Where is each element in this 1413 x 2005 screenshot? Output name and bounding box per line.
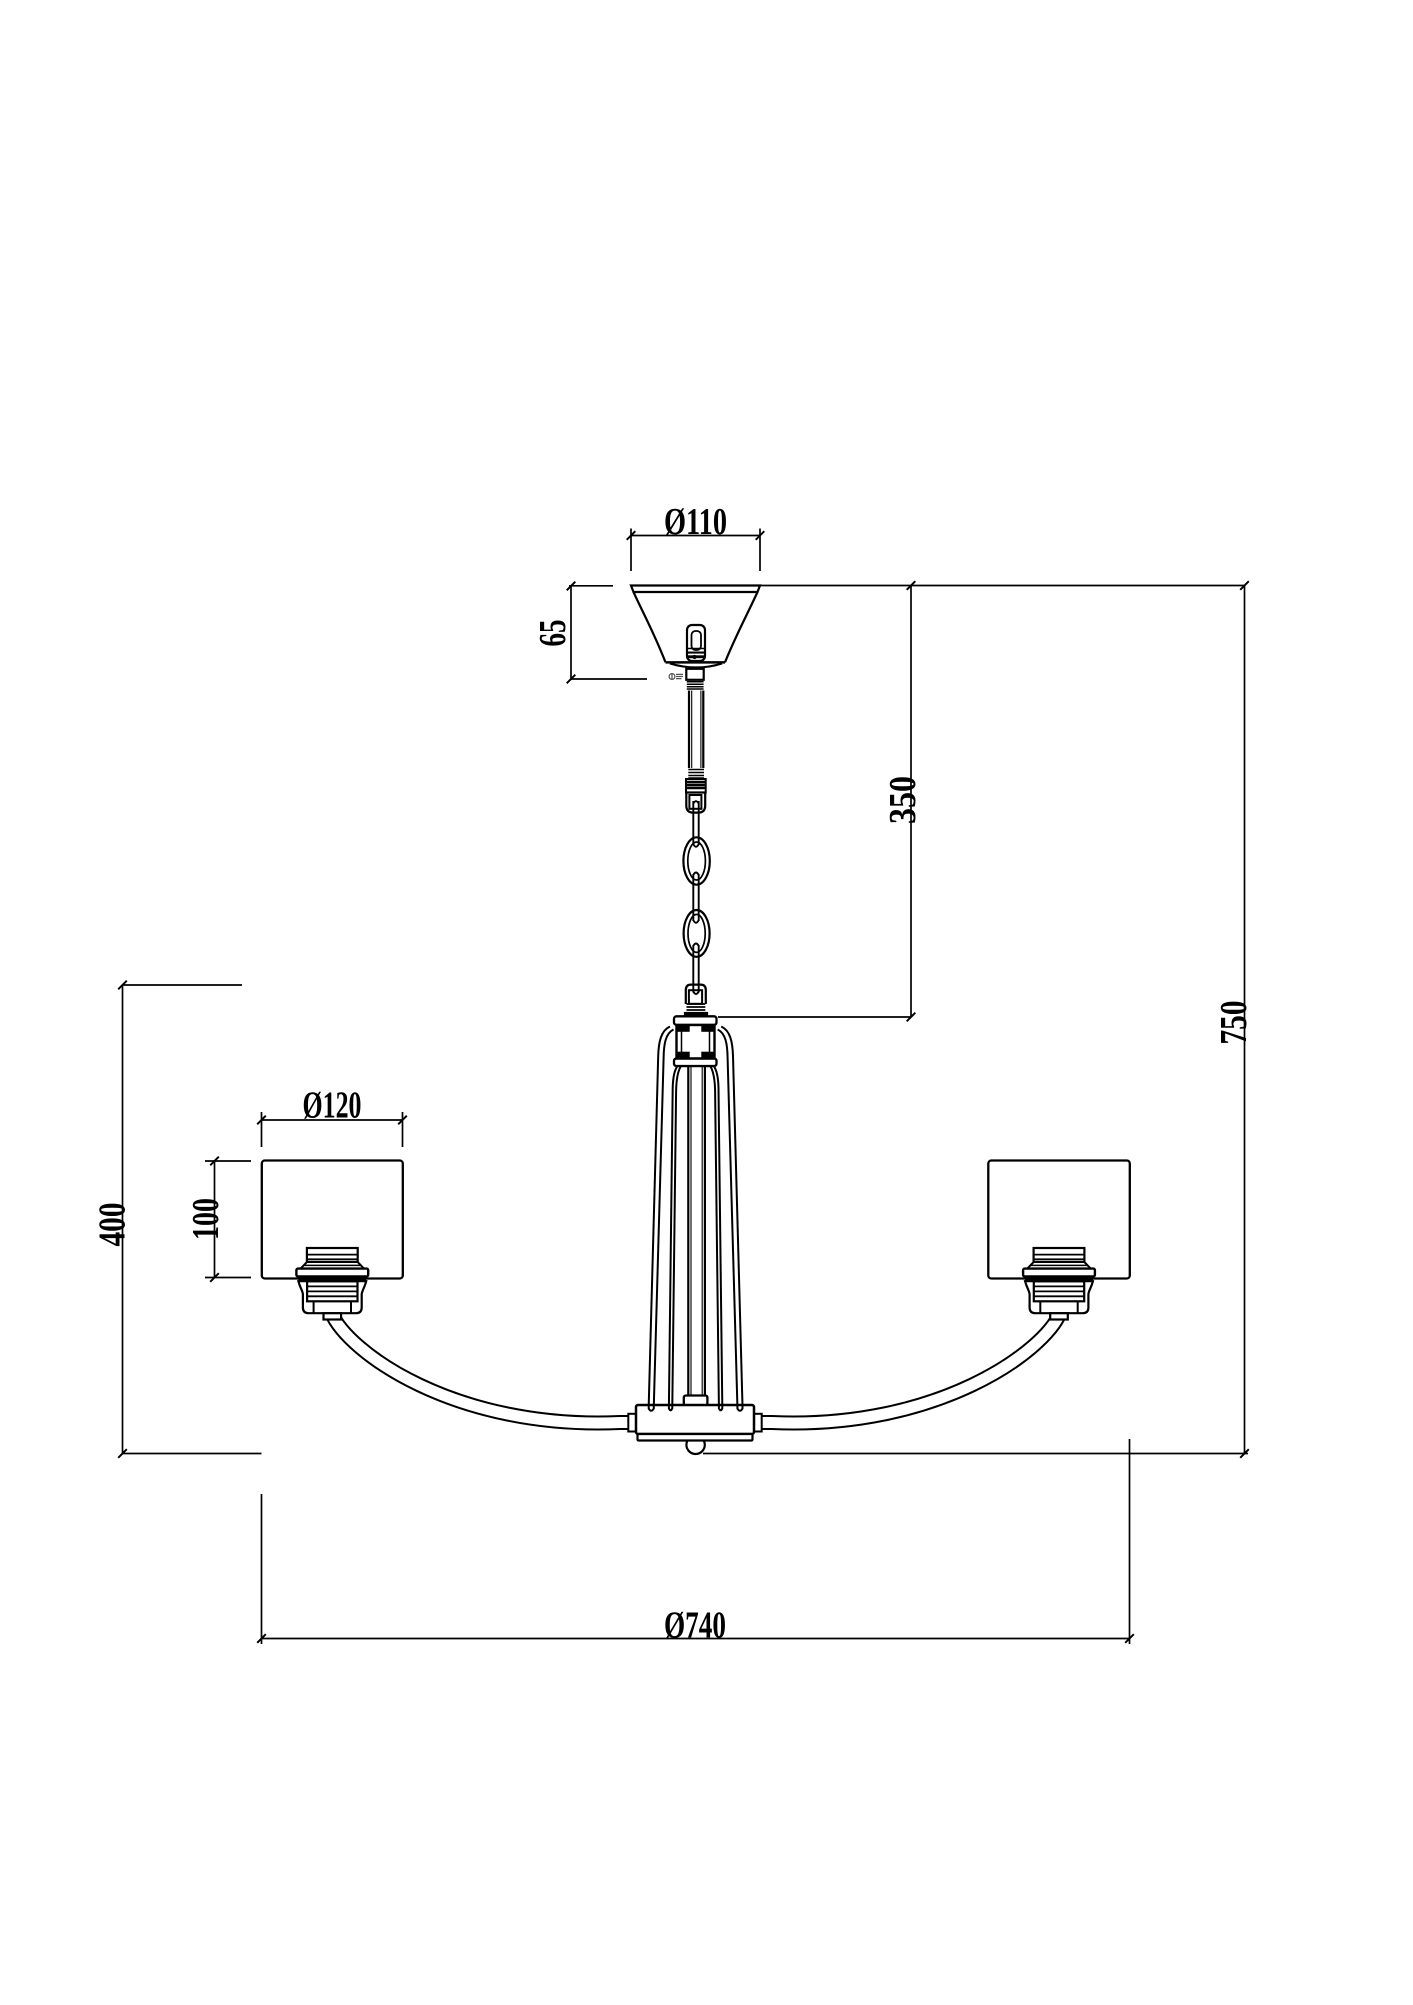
svg-text:750: 750 xyxy=(1213,1001,1255,1045)
svg-text:350: 350 xyxy=(882,776,924,824)
svg-text:Ø740: Ø740 xyxy=(664,1605,726,1647)
svg-text:Ø110: Ø110 xyxy=(664,501,727,543)
svg-text:100: 100 xyxy=(185,1198,227,1240)
svg-text:65: 65 xyxy=(532,620,574,647)
svg-text:400: 400 xyxy=(92,1203,134,1247)
